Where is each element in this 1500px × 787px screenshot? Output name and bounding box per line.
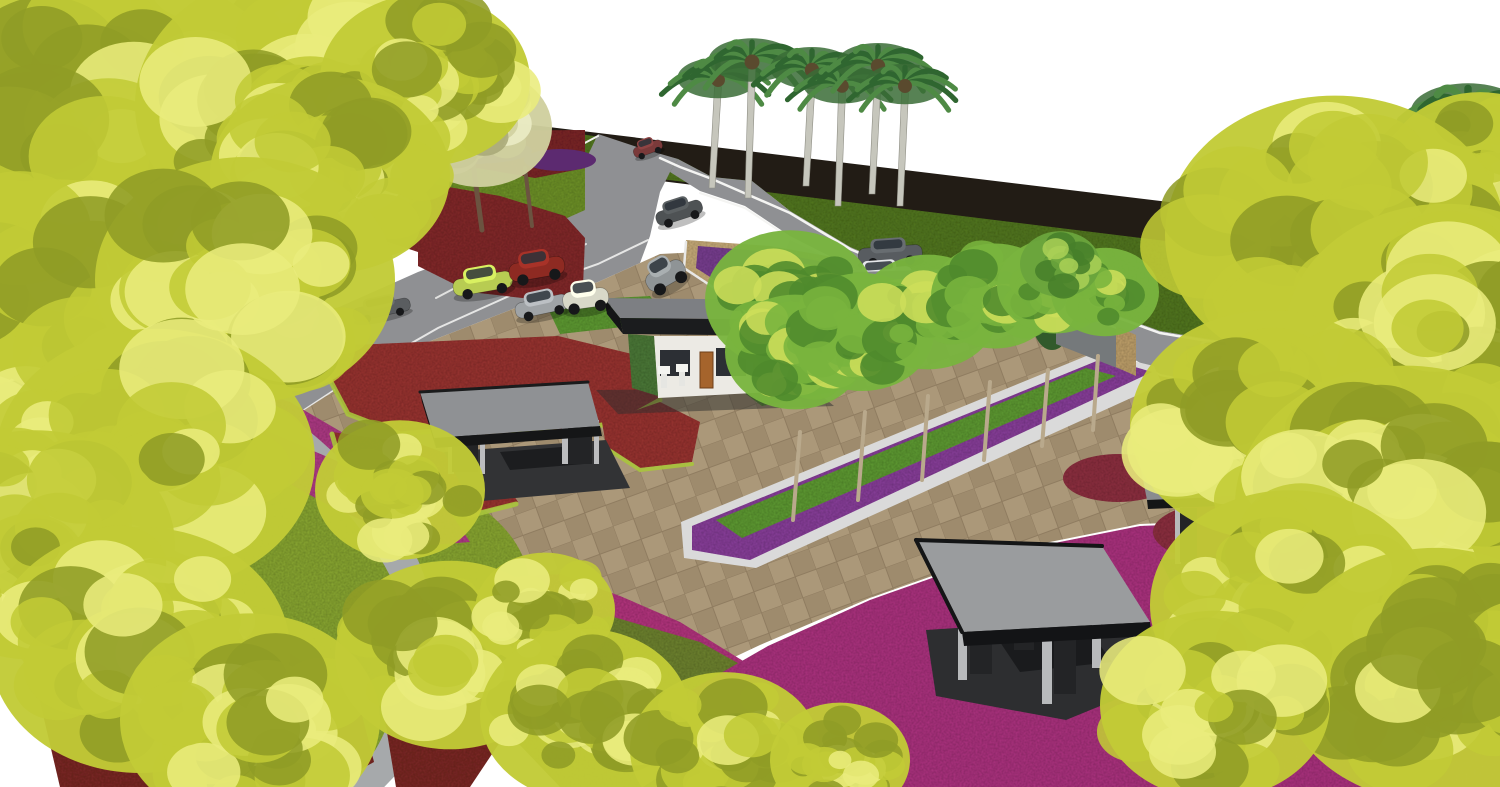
pavilion-lattice xyxy=(1054,636,1076,694)
washbasin-pedestal xyxy=(661,374,667,388)
kiosk-door xyxy=(700,352,713,388)
landscape-render-stage xyxy=(0,0,1500,787)
washbasin-pedestal xyxy=(679,372,685,386)
park-plaza-3d-render xyxy=(0,0,1500,787)
pavilion-post xyxy=(1042,634,1052,704)
washbasin xyxy=(658,366,670,374)
washbasin xyxy=(676,364,688,372)
kiosk-green-wall xyxy=(628,334,658,396)
